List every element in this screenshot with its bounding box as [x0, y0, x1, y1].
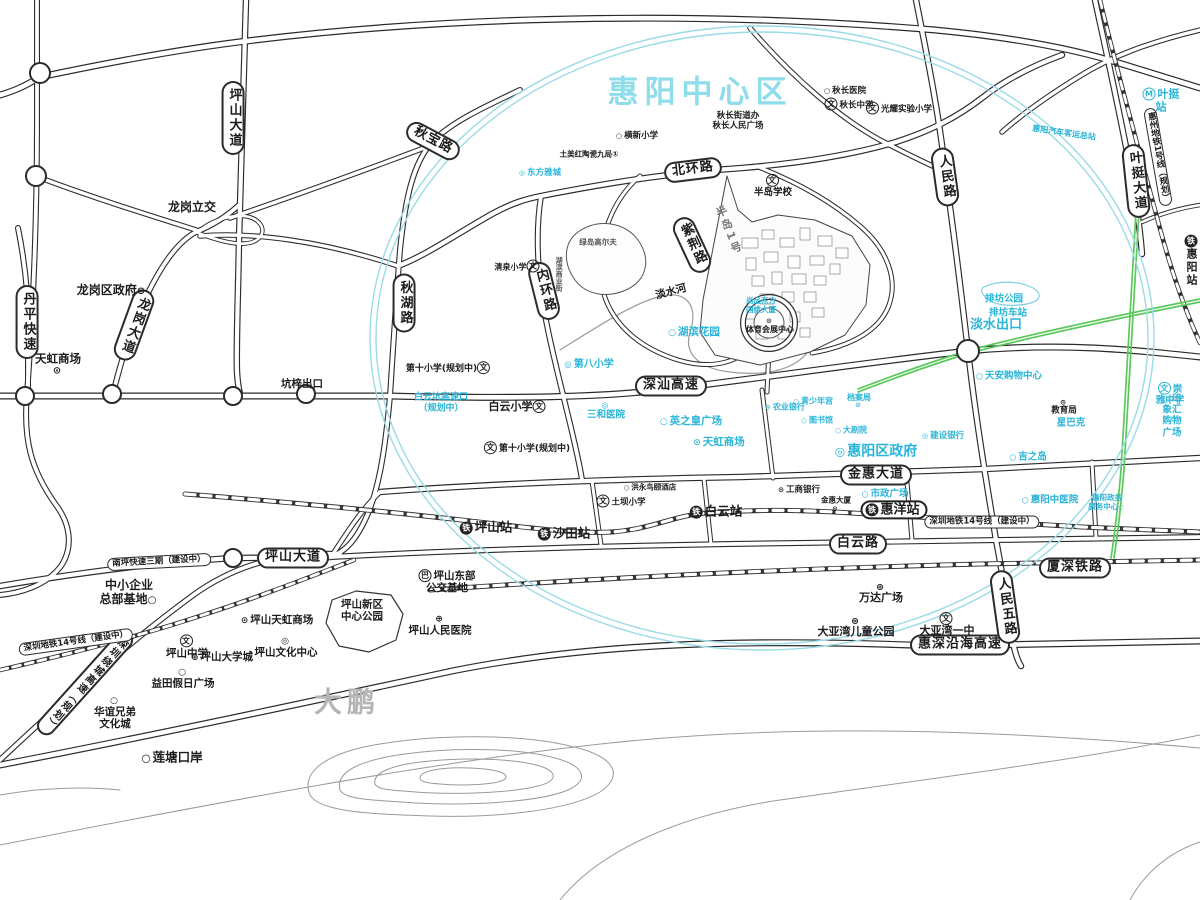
poi-label: 排坊公园	[985, 293, 1023, 304]
label-text: 工商银行	[786, 485, 820, 495]
label-text: 龙岗立交	[168, 200, 216, 214]
poi-ring-icon: ◎	[835, 445, 845, 459]
label-text: 清泉小学	[495, 263, 527, 272]
train-station-icon: 铁	[690, 506, 703, 519]
poi-label: 巴坪山东部 公交基地	[419, 569, 476, 595]
label-text: 深汕高速	[643, 378, 699, 393]
poi-circle-icon: ○	[861, 489, 868, 498]
poi-dot-icon: ⊙	[855, 402, 861, 409]
road-label: 坪山大道	[257, 548, 329, 569]
label-text: 益田假日广场	[152, 677, 215, 689]
poi-label: ⊕坪山人民医院	[409, 615, 472, 636]
label-text: 第八小学	[574, 359, 614, 370]
label-text: 市政广场	[871, 488, 909, 499]
label-text: 龙岗区政府	[77, 283, 137, 297]
label-text: 湖滨商业街	[555, 257, 563, 292]
road-label: 秋宝路	[402, 118, 463, 164]
label-text: 北环路	[671, 159, 715, 179]
poi-label: ○洪永鸟颐酒店	[624, 484, 677, 493]
road-label: 人民路	[930, 146, 961, 208]
school-icon: 文	[477, 361, 490, 374]
school-icon: 文	[866, 101, 879, 114]
label-text: 秋长街道办 秋长人民广场	[712, 111, 763, 131]
label-text: 坪山大学城	[200, 651, 253, 663]
label-text: 人民五路	[994, 576, 1017, 638]
label-text: 坪山天虹商场	[250, 614, 313, 626]
road-label: 金惠大道	[840, 465, 912, 486]
poi-label: 文大亚湾一中	[920, 612, 975, 638]
poi-dot-icon: ⊙	[53, 366, 61, 376]
poi-circle-icon: ○	[835, 426, 841, 434]
poi-label: ◎三和医院	[587, 401, 625, 420]
poi-label: 土美红陶瓷九局①	[560, 151, 619, 160]
poi-label: 绿岛高尔夫	[579, 239, 617, 248]
poi-label: 星巴克	[1057, 417, 1086, 428]
label-text: 半岛1号	[713, 204, 745, 258]
label-text: 土坝小学	[611, 497, 645, 507]
poi-ring-icon: ◎	[564, 360, 571, 370]
poi-label: 龙岗区政府⊛	[77, 283, 148, 297]
poi-label: 湖滨商业街	[555, 257, 563, 292]
poi-label: 档案局⊙	[847, 393, 871, 409]
map-labels-layer: 坪山大道秋宝路秋湖路内环路北环路紫荆路人民路叶挺大道丹平快速龙岗大道深汕高速金惠…	[0, 0, 1200, 900]
label-text: 白云路	[837, 536, 879, 551]
road-label: 厦深铁路	[1039, 558, 1111, 579]
label-text: 坪山站	[475, 520, 513, 535]
school-icon: 文	[765, 174, 778, 187]
poi-ring-icon: ◎	[281, 637, 289, 646]
poi-label: ○惠阳中医院	[1022, 494, 1079, 505]
poi-label: ○市政广场	[861, 488, 908, 499]
road-label: 白云路	[829, 534, 887, 555]
poi-label: ○华谊兄弟 文化城	[94, 697, 136, 731]
label-text: 白云站	[705, 504, 743, 519]
label-text: 教育局	[1051, 406, 1077, 416]
government-icon: ⊛	[137, 286, 146, 297]
poi-label: 文土坝小学	[596, 494, 645, 507]
label-text: 第十小学(规划中)	[499, 444, 570, 454]
school-icon: 文	[484, 441, 497, 454]
poi-label: ⊙农业银行	[765, 402, 805, 411]
label-text: 英之皇广场	[670, 415, 723, 427]
station-label: 铁白云站	[690, 505, 743, 520]
label-text: 惠阳中医院	[1031, 494, 1079, 505]
poi-circle-icon: ○	[824, 86, 830, 95]
label-text: 龙岗大道	[118, 295, 153, 357]
station-pill-label: 铁惠洋站	[860, 500, 927, 519]
poi-circle-icon: ○	[1118, 503, 1124, 511]
poi-label: ◎建设银行	[922, 431, 964, 441]
label-text: 惠洋站	[880, 502, 919, 517]
label-text: 惠阳汽车客运总站	[1032, 124, 1097, 142]
poi-circle-icon: ○	[178, 668, 186, 677]
school-icon: 文	[596, 494, 609, 507]
school-icon: 文	[180, 634, 193, 647]
label-text: 深圳地铁14号线（建设中）	[929, 516, 1034, 526]
label-text: 惠州地铁1号线（规划）	[1146, 111, 1172, 202]
poi-label: 淡水河	[654, 282, 688, 302]
label-text: 天安购物中心	[985, 370, 1042, 381]
poi-label: 坑梓出口	[281, 378, 323, 390]
poi-circle-icon: ○	[624, 484, 630, 492]
label-text: 天虹商场	[703, 436, 745, 448]
metro-icon: M	[1143, 88, 1156, 101]
poi-label: 文第十小学(规划中)	[484, 441, 570, 455]
road-label: 紫荆路	[669, 213, 715, 276]
label-text: 丹平快速	[20, 292, 35, 352]
road-label: 南坪快速三期（建设中）	[107, 553, 211, 571]
label-text: 半岛学校	[754, 187, 792, 198]
station-label: 铁沙田站	[538, 527, 591, 542]
poi-dot-icon: ⊙	[765, 403, 771, 411]
label-text: 金惠大道	[848, 467, 904, 482]
poi-circle-icon: ○	[1009, 452, 1016, 461]
poi-label: ○湖滨花园	[668, 326, 720, 338]
poi-label: ○大剧院	[835, 425, 867, 434]
poi-label: 坪山新区 中心公园	[341, 599, 383, 624]
label-text: 叶挺站	[1156, 88, 1180, 114]
label-text: 坪山大道	[265, 550, 321, 565]
poi-label: ⊛大亚湾儿童公园	[818, 617, 895, 639]
station-label: M叶挺站	[1142, 88, 1181, 115]
label-text: 横新小学	[624, 131, 658, 141]
poi-label: 天虹商场⊙	[35, 352, 81, 375]
road-label: 深汕高速	[635, 376, 707, 397]
hospital-icon: ⊕	[191, 653, 198, 663]
label-text: 坪山人民医院	[409, 624, 472, 636]
poi-label: ⊕万达广场	[859, 583, 903, 605]
label-text: 农业银行	[773, 402, 805, 411]
poi-label: ○吉之岛	[1009, 451, 1047, 462]
label-text: 惠阳站	[1187, 248, 1198, 287]
poi-dot-icon: ⊙	[766, 318, 772, 325]
poi-label: 尚品东方 国维大厦	[746, 297, 776, 315]
poi-label: ○印象汇购物广场	[1158, 394, 1186, 439]
label-text: 坪山文化中心	[255, 646, 318, 658]
poi-ring-icon: ◎	[922, 431, 928, 440]
road-label: 坪山大道	[222, 81, 245, 155]
label-text: 大剧院	[843, 425, 867, 434]
poi-label: 金惠大厦⊙	[821, 496, 851, 511]
hospital-icon: ⊕	[435, 615, 442, 624]
poi-label: ○益田假日广场	[152, 668, 215, 689]
label-text: 中小企业 总部基地	[100, 578, 153, 606]
poi-label: 惠阳汽车客运总站	[1032, 124, 1097, 142]
poi-label: ⊙天虹商场	[693, 436, 744, 448]
poi-label: ◎东方雅城	[519, 168, 561, 178]
label-text: 第十小学(规划中)	[406, 364, 477, 374]
poi-label: ○英之皇广场	[660, 415, 722, 427]
label-text: 绿岛高尔夫	[579, 238, 617, 247]
road-label: 龙岗大道	[111, 286, 158, 363]
label-text: 秋长医院	[832, 86, 866, 96]
label-text: 惠阳政务 服务中心	[1088, 493, 1122, 511]
station-label: 铁坪山站	[460, 521, 513, 536]
road-label: 深圳地铁14号线（建设中）	[924, 515, 1039, 528]
label-text: 尚品东方 国维大厦	[746, 296, 776, 314]
station-label: 铁惠阳站	[1185, 235, 1200, 288]
poi-circle-icon: ○	[148, 595, 157, 606]
poi-circle-icon: ○	[660, 417, 668, 427]
road-label: 丹平快速	[16, 285, 39, 359]
label-text: 淡水出口	[970, 317, 1022, 332]
poi-circle-icon: ○	[141, 752, 150, 765]
label-text: 坪山新区 中心公园	[341, 599, 383, 623]
poi-label: 淡水出口	[970, 317, 1022, 332]
label-text: 秋宝路	[411, 124, 455, 157]
school-icon: 文	[527, 260, 540, 273]
poi-circle-icon: ○	[1163, 395, 1170, 404]
label-text: 内环路	[532, 267, 557, 314]
school-icon: 文	[824, 97, 837, 110]
label-text: 三和医院	[587, 409, 625, 420]
poi-label: ○图书馆	[801, 415, 833, 424]
label-text: 图书馆	[809, 415, 833, 424]
train-station-icon: 铁	[538, 528, 551, 541]
label-text: 坪山东部 公交基地	[426, 570, 476, 594]
label-text: 白云坑高速口 （规划中）	[414, 392, 468, 413]
poi-label: ◎惠阳区政府	[835, 444, 917, 461]
school-icon: 文	[533, 400, 546, 413]
label-text: 洪永鸟颐酒店	[631, 483, 676, 492]
poi-label: 中小企业 总部基地○	[100, 578, 159, 606]
poi-label: ⊙教育局	[1051, 398, 1077, 415]
label-text: 惠阳区政府	[847, 444, 917, 460]
label-text: 秋湖路	[397, 281, 412, 326]
label-text: 星巴克	[1057, 417, 1086, 428]
label-text: 白云小学	[489, 400, 533, 413]
label-text: 紫荆路	[677, 221, 710, 268]
label-text: 光耀实验小学	[881, 104, 932, 114]
poi-label: ⊙坪山天虹商场	[241, 614, 313, 626]
poi-circle-icon: ○	[801, 416, 807, 424]
label-text: 淡水河	[654, 282, 688, 302]
poi-label: 白云坑高速口 （规划中）	[414, 392, 468, 413]
poi-circle-icon: ○	[976, 371, 983, 380]
poi-label: ⊕坪山大学城	[191, 651, 253, 663]
label-text: 惠深沿海高速	[918, 637, 1002, 652]
poi-label: ○横新小学	[616, 131, 658, 141]
poi-label: 半岛1号	[712, 204, 744, 258]
poi-dot-icon: ⊙	[693, 438, 700, 448]
district-title: 惠阳中心区	[608, 75, 793, 112]
label-text: 华谊兄弟 文化城	[94, 706, 136, 731]
label-text: 天虹商场	[35, 352, 81, 366]
poi-circle-icon: ○	[110, 697, 118, 706]
label-text: 坪山大道	[226, 88, 241, 148]
label-text: 沙田站	[553, 526, 591, 541]
label-text: 厦深铁路	[1047, 560, 1103, 575]
label-text: 湖滨花园	[678, 326, 720, 338]
label-text: 东方雅城	[527, 168, 561, 178]
poi-dot-icon: ⊙	[241, 616, 248, 626]
poi-label: 第十小学(规划中)文	[406, 361, 492, 375]
poi-label: ⊙工商银行	[778, 485, 820, 495]
poi-dot-icon: ⊙	[778, 485, 784, 494]
poi-circle-icon: ○	[668, 328, 676, 338]
poi-label: 龙岗立交	[168, 200, 216, 214]
poi-label: 文光耀实验小学	[866, 101, 932, 114]
label-text: 坑梓出口	[281, 378, 323, 390]
label-text: 排坊公园	[985, 293, 1023, 304]
poi-ring-icon: ◎	[601, 401, 608, 409]
label-text: 南坪快速三期（建设中）	[112, 554, 206, 569]
label-text: 大亚湾一中	[920, 625, 975, 638]
label-text: 大鹏	[314, 685, 380, 718]
poi-label: ○莲塘口岸	[141, 751, 202, 766]
label-text: 叶挺大道	[1126, 150, 1147, 211]
label-text: 体育会展中心	[746, 325, 794, 334]
label-text: 人民路	[935, 154, 956, 201]
road-label: 秋湖路	[393, 274, 416, 333]
bus-icon: 巴	[419, 569, 432, 582]
label-text: 吉之岛	[1018, 451, 1047, 462]
poi-label: 白云小学文	[489, 400, 548, 414]
poi-label: ◎第八小学	[564, 359, 613, 371]
label-text: 大亚湾儿童公园	[818, 626, 895, 639]
poi-label: ○秋长医院	[824, 86, 866, 96]
poi-circle-icon: ○	[1022, 495, 1029, 504]
poi-label: ◎坪山文化中心	[255, 637, 318, 658]
map-canvas[interactable]: 坪山大道秋宝路秋湖路内环路北环路紫荆路人民路叶挺大道丹平快速龙岗大道深汕高速金惠…	[0, 0, 1200, 900]
train-station-icon: 铁	[865, 503, 878, 516]
road-label: 叶挺大道	[1121, 143, 1152, 219]
poi-label: ⊙体育会展中心	[746, 318, 794, 334]
poi-label: 文半岛学校	[754, 174, 792, 198]
poi-ring-icon: ◎	[519, 168, 525, 177]
label-text: 建设银行	[930, 431, 964, 441]
area-label: 大鹏	[314, 685, 380, 718]
poi-circle-icon: ○	[616, 131, 622, 140]
label-text: 莲塘口岸	[153, 750, 203, 765]
road-label: 北环路	[663, 156, 723, 184]
label-text: 青少年宫	[801, 396, 833, 405]
label-text: 土美红陶瓷九局①	[560, 150, 619, 159]
train-station-icon: 铁	[1185, 235, 1198, 248]
train-station-icon: 铁	[460, 522, 473, 535]
poi-label: 惠阳政务 服务中心○	[1088, 494, 1126, 512]
poi-label: 秋长街道办 秋长人民广场	[712, 111, 763, 131]
poi-label: 清泉小学文	[495, 260, 542, 273]
label-text: 万达广场	[859, 592, 903, 605]
poi-label: ○天安购物中心	[976, 370, 1042, 381]
poi-dot-icon: ⊙	[832, 505, 837, 511]
